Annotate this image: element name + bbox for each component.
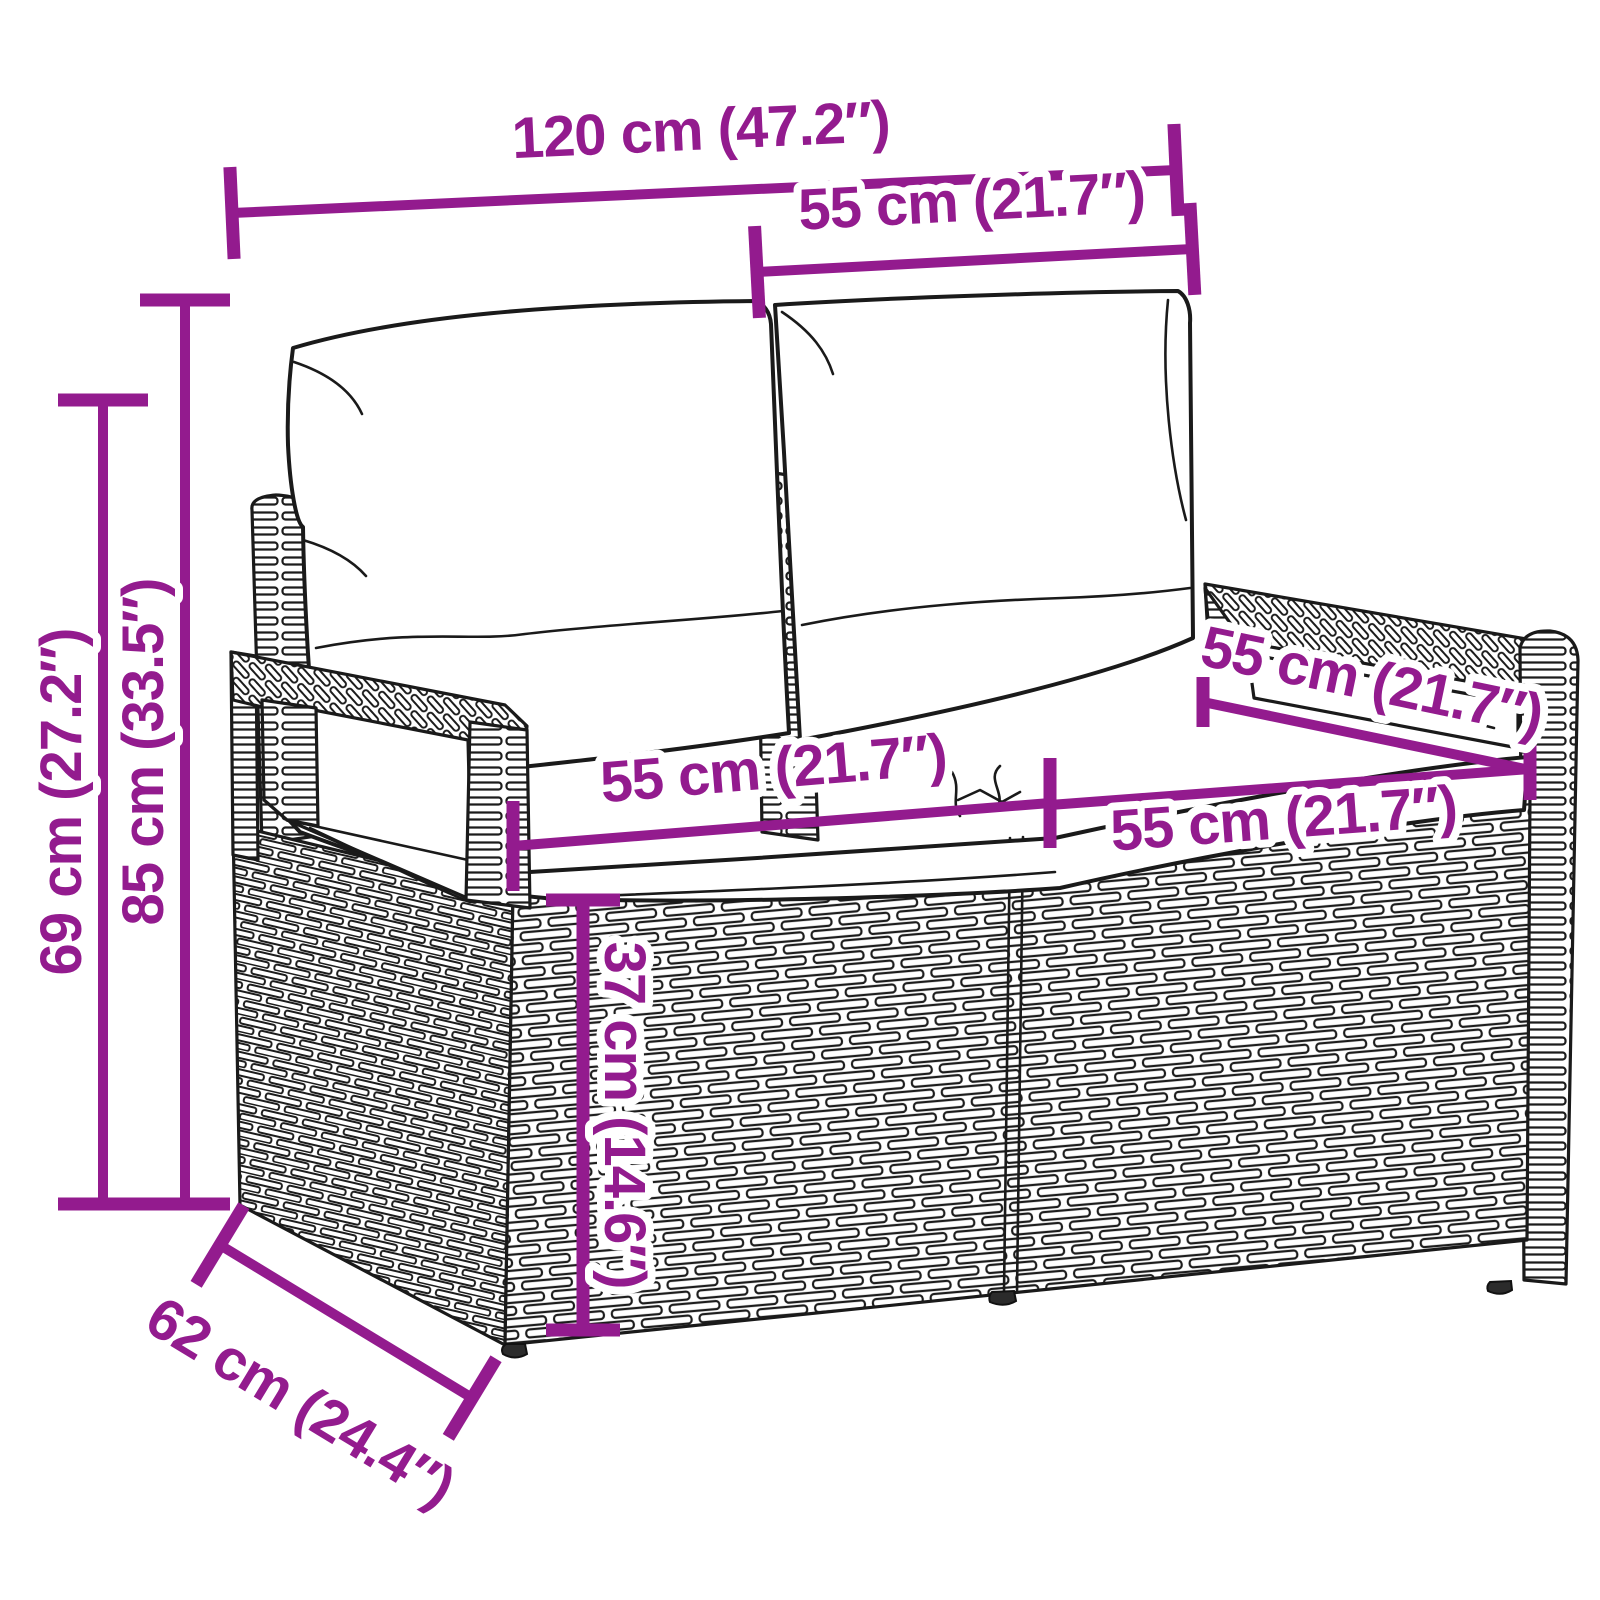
diagram-canvas: 120 cm (47.2″) 55 cm (21.7″) 85 cm (33.5…: [0, 0, 1600, 1600]
dim-overall-depth-label: 62 cm (24.4″): [135, 1284, 465, 1520]
armrest-left-front-post: [466, 722, 530, 908]
dim-total-height-label: 85 cm (33.5″): [111, 579, 176, 926]
dim-overall-width-label: 120 cm (47.2″): [510, 89, 891, 171]
armrest-left-inner-post: [262, 700, 318, 826]
bench-foot: [1487, 1281, 1512, 1294]
dim-frame-height-label: 69 cm (27.2″): [29, 629, 94, 976]
bench-foot: [502, 1344, 527, 1358]
back-cushion-right: [775, 291, 1193, 740]
base-side-left: [233, 825, 513, 1345]
dim-section-width-back-label: 55 cm (21.7″): [797, 159, 1147, 242]
dim-total-height: 85 cm (33.5″): [111, 300, 230, 1204]
dimension-diagram: 120 cm (47.2″) 55 cm (21.7″) 85 cm (33.5…: [0, 0, 1600, 1600]
dim-seat-height-label: 37 cm (14.6″): [592, 942, 657, 1289]
bench-foot: [989, 1291, 1016, 1305]
